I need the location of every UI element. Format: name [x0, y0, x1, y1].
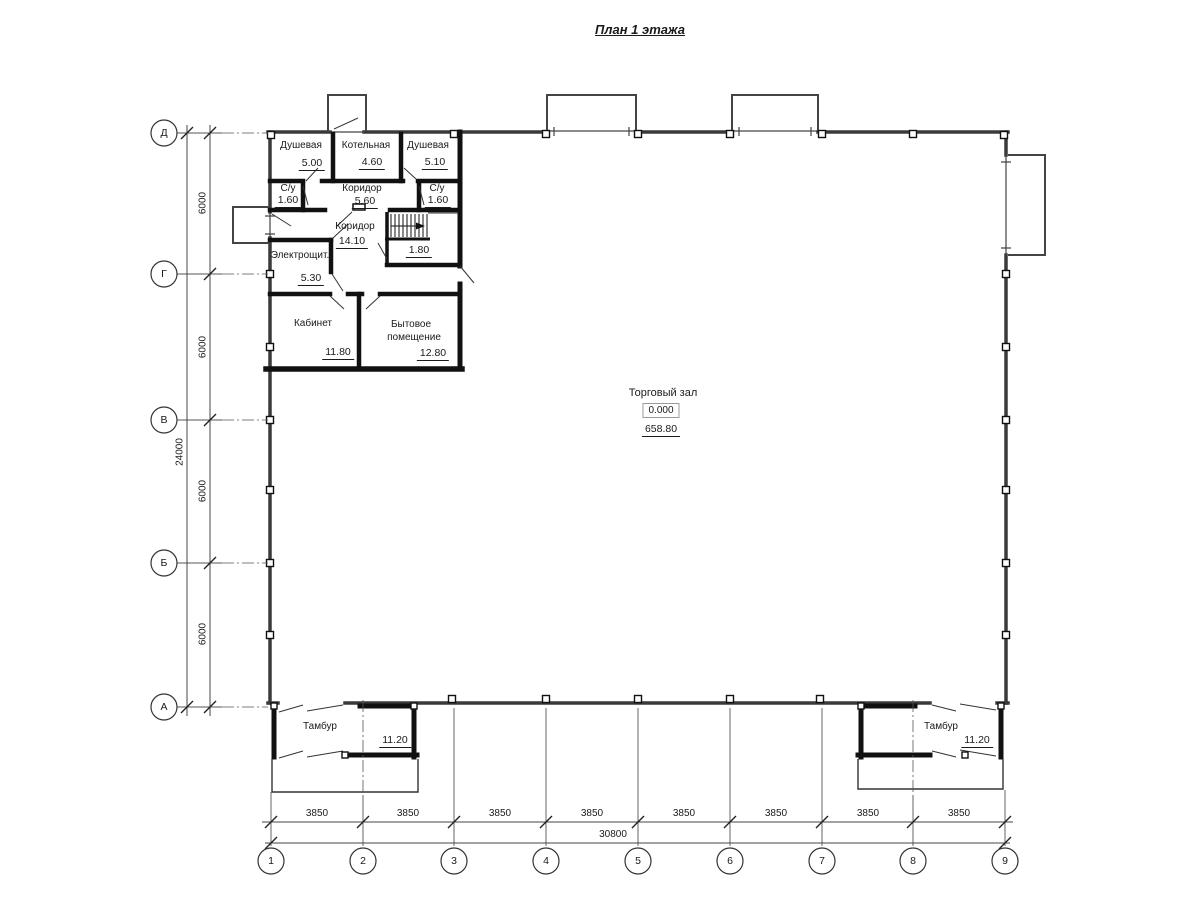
level-mark: 0.000: [642, 403, 679, 418]
axis-label-1: 1: [268, 855, 274, 867]
column-marks: [267, 131, 1010, 759]
floor-plan-page: План 1 этажа Душевая 5.00 Котельная 4.60…: [0, 0, 1200, 900]
dim-total-width: 30800: [599, 829, 627, 840]
dim-row-3: 6000: [198, 480, 209, 502]
porches: [272, 759, 1003, 792]
dimension-lines: [187, 125, 1013, 843]
dim-col-5: 3850: [673, 808, 695, 819]
axis-label-5: 5: [635, 855, 641, 867]
room-label-utility-line1: Бытовое: [391, 319, 431, 330]
axis-label-2: 2: [360, 855, 366, 867]
axis-bubbles: [151, 120, 1018, 874]
room-label-wc2: С/у: [430, 183, 445, 194]
axis-label-v: В: [160, 414, 167, 426]
room-area-shower1: 5.00: [299, 157, 325, 171]
axis-label-9: 9: [1002, 855, 1008, 867]
axis-label-g: Г: [161, 268, 167, 280]
room-area-shower2: 5.10: [422, 156, 448, 170]
room-label-electrical: Электрощит.: [271, 250, 330, 261]
room-area-corridor1: 5.60: [352, 195, 378, 209]
room-area-corridor2: 14.10: [336, 235, 368, 249]
axis-label-7: 7: [819, 855, 825, 867]
axis-label-a: А: [160, 701, 167, 713]
dim-col-7: 3850: [857, 808, 879, 819]
stair-direction-arrow-icon: [416, 223, 425, 230]
dim-col-6: 3850: [765, 808, 787, 819]
dim-col-8: 3850: [948, 808, 970, 819]
room-area-wc1: 1.60: [275, 194, 301, 208]
axis-label-6: 6: [727, 855, 733, 867]
room-label-sales-hall: Торговый зал: [629, 387, 698, 399]
room-area-sales-hall: 658.80: [642, 423, 680, 437]
dim-row-1: 6000: [198, 192, 209, 214]
axis-label-8: 8: [910, 855, 916, 867]
dim-row-2: 6000: [198, 336, 209, 358]
dim-col-2: 3850: [397, 808, 419, 819]
room-label-shower2: Душевая: [407, 140, 449, 151]
room-label-boiler: Котельная: [342, 140, 390, 151]
room-area-vestibule-left: 11.20: [379, 734, 411, 748]
room-label-utility-line2: помещение: [387, 332, 441, 343]
axis-label-3: 3: [451, 855, 457, 867]
room-area-utility: 12.80: [417, 347, 449, 361]
dim-total-height: 24000: [175, 438, 186, 466]
room-area-electrical: 5.30: [298, 272, 324, 286]
room-label-shower1: Душевая: [280, 140, 322, 151]
room-label-vestibule-left: Тамбур: [303, 721, 337, 732]
dim-col-1: 3850: [306, 808, 328, 819]
dim-col-3: 3850: [489, 808, 511, 819]
vestibule-left-walls: [274, 706, 417, 757]
vestibule-doors: [279, 704, 996, 758]
room-label-wc1: С/у: [281, 183, 296, 194]
axis-label-4: 4: [543, 855, 549, 867]
room-label-office: Кабинет: [294, 318, 332, 329]
room-label-corridor1: Коридор: [342, 183, 382, 194]
axis-label-d: Д: [160, 127, 167, 139]
room-area-boiler: 4.60: [359, 156, 385, 170]
room-area-wc2: 1.60: [425, 194, 451, 208]
room-area-understairs: 1.80: [406, 244, 432, 258]
room-label-vestibule-right: Тамбур: [924, 721, 958, 732]
axis-label-b: Б: [161, 557, 168, 569]
dim-row-4: 6000: [198, 623, 209, 645]
dim-col-4: 3850: [581, 808, 603, 819]
room-area-vestibule-right: 11.20: [961, 734, 993, 748]
dimension-ticks: [181, 127, 1011, 849]
room-label-corridor2: Коридор: [335, 221, 375, 232]
room-area-office: 11.80: [322, 346, 354, 360]
drawing-title: План 1 этажа: [595, 22, 685, 37]
outer-walls: [268, 132, 1008, 703]
